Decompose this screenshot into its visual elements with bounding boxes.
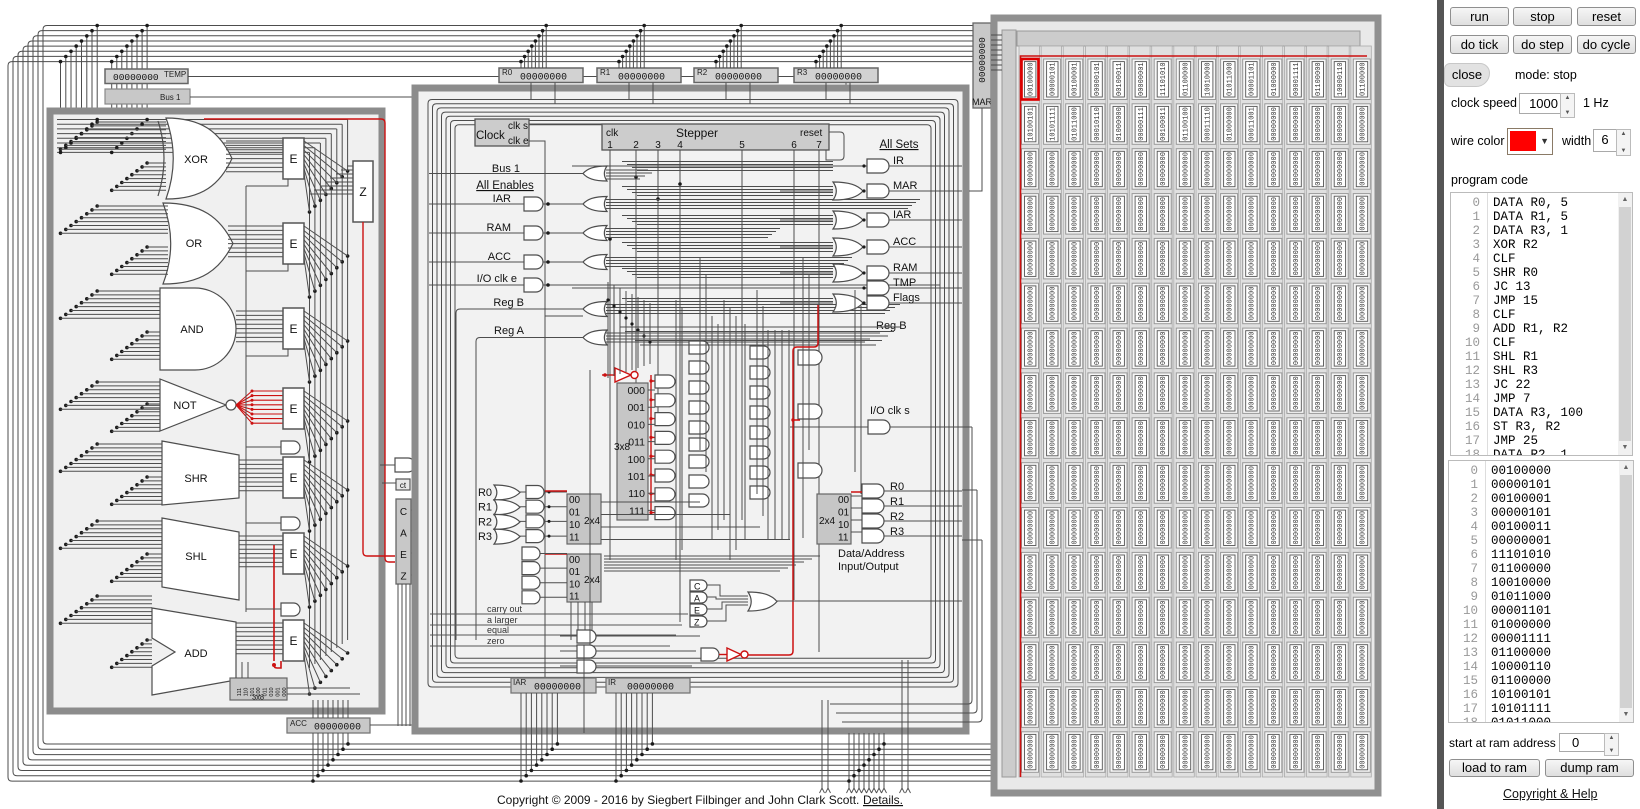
- svg-text:00000000: 00000000: [1293, 556, 1301, 590]
- svg-text:00000000: 00000000: [1337, 466, 1345, 500]
- svg-text:00000000: 00000000: [1182, 690, 1190, 724]
- svg-text:00000000: 00000000: [1249, 690, 1257, 724]
- svg-text:00100011: 00100011: [1160, 107, 1168, 141]
- svg-text:3x8: 3x8: [614, 442, 631, 453]
- svg-text:Stepper: Stepper: [676, 126, 718, 140]
- svg-text:00000000: 00000000: [1028, 152, 1036, 186]
- svg-text:00000000: 00000000: [1271, 242, 1279, 276]
- svg-text:00000000: 00000000: [1249, 421, 1257, 455]
- svg-text:6: 6: [791, 140, 797, 151]
- svg-text:00000000: 00000000: [1094, 287, 1102, 321]
- svg-text:01100100: 01100100: [1182, 107, 1190, 141]
- svg-text:7: 7: [816, 140, 822, 151]
- svg-text:00000000: 00000000: [1271, 421, 1279, 455]
- svg-text:00000000: 00000000: [1182, 601, 1190, 635]
- svg-text:00000000: 00000000: [1072, 601, 1080, 635]
- svg-text:00000000: 00000000: [1271, 735, 1279, 769]
- svg-text:00001101: 00001101: [1249, 62, 1257, 96]
- svg-text:01: 01: [838, 508, 850, 519]
- svg-text:00: 00: [569, 555, 581, 566]
- svg-text:Bus 1: Bus 1: [160, 93, 181, 102]
- svg-text:00000000: 00000000: [1050, 197, 1058, 231]
- svg-text:IAR: IAR: [893, 209, 911, 221]
- svg-text:00000000: 00000000: [1227, 242, 1235, 276]
- svg-text:00000000: 00000000: [1227, 466, 1235, 500]
- svg-text:00000000: 00000000: [1359, 242, 1367, 276]
- svg-text:00000000: 00000000: [1182, 421, 1190, 455]
- svg-text:00000000: 00000000: [1138, 690, 1146, 724]
- svg-text:00000000: 00000000: [1337, 287, 1345, 321]
- svg-text:01100000: 01100000: [1359, 62, 1367, 96]
- svg-text:00000000: 00000000: [1227, 376, 1235, 410]
- svg-text:101: 101: [627, 471, 645, 483]
- svg-text:00000000: 00000000: [1359, 601, 1367, 635]
- svg-text:00000000: 00000000: [1359, 466, 1367, 500]
- svg-text:00000000: 00000000: [1072, 511, 1080, 545]
- svg-text:00000000: 00000000: [1315, 376, 1323, 410]
- svg-text:00000000: 00000000: [1116, 556, 1124, 590]
- svg-text:00000000: 00000000: [1028, 242, 1036, 276]
- svg-text:00000000: 00000000: [1315, 511, 1323, 545]
- svg-text:R0: R0: [890, 481, 904, 493]
- svg-text:00000000: 00000000: [1249, 287, 1257, 321]
- svg-text:00000000: 00000000: [1205, 645, 1213, 679]
- svg-text:4: 4: [677, 140, 683, 151]
- svg-text:00000000: 00000000: [1182, 376, 1190, 410]
- svg-text:00000000: 00000000: [1160, 690, 1168, 724]
- svg-text:00000000: 00000000: [1116, 287, 1124, 321]
- svg-text:00000000: 00000000: [1050, 376, 1058, 410]
- svg-text:IAR: IAR: [513, 678, 527, 687]
- svg-text:10100101: 10100101: [1028, 107, 1036, 141]
- svg-text:00000000: 00000000: [1359, 376, 1367, 410]
- svg-text:00000000: 00000000: [1271, 466, 1279, 500]
- svg-text:E: E: [289, 471, 297, 485]
- svg-text:00000000: 00000000: [1315, 242, 1323, 276]
- svg-text:00000000: 00000000: [1293, 690, 1301, 724]
- svg-text:MAR: MAR: [893, 180, 918, 192]
- svg-text:A: A: [694, 594, 700, 604]
- svg-text:00000000: 00000000: [1182, 511, 1190, 545]
- svg-text:00: 00: [838, 495, 850, 506]
- svg-text:00000000: 00000000: [1028, 556, 1036, 590]
- svg-text:00000000: 00000000: [1094, 421, 1102, 455]
- svg-text:00000000: 00000000: [1359, 735, 1367, 769]
- svg-text:00000000: 00000000: [1116, 376, 1124, 410]
- svg-text:00000000: 00000000: [1094, 197, 1102, 231]
- svg-text:00000000: 00000000: [1050, 421, 1058, 455]
- svg-text:00000000: 00000000: [1315, 287, 1323, 321]
- svg-text:00000000: 00000000: [113, 72, 159, 83]
- svg-text:00000000: 00000000: [1293, 511, 1301, 545]
- svg-text:00010110: 00010110: [1094, 107, 1102, 141]
- svg-text:00000000: 00000000: [1271, 690, 1279, 724]
- svg-text:00000000: 00000000: [1138, 197, 1146, 231]
- svg-text:2x4: 2x4: [584, 575, 601, 586]
- svg-text:00000000: 00000000: [534, 682, 581, 693]
- svg-text:00000000: 00000000: [1050, 690, 1058, 724]
- svg-text:00000000: 00000000: [1138, 331, 1146, 365]
- svg-text:10: 10: [838, 520, 850, 531]
- svg-text:00000000: 00000000: [1359, 152, 1367, 186]
- svg-text:00000000: 00000000: [1028, 690, 1036, 724]
- svg-text:00000000: 00000000: [1271, 197, 1279, 231]
- svg-text:00000000: 00000000: [1072, 556, 1080, 590]
- svg-text:IR: IR: [893, 155, 904, 167]
- svg-text:Z: Z: [359, 185, 366, 199]
- svg-text:00000000: 00000000: [1050, 331, 1058, 365]
- svg-text:00000000: 00000000: [1249, 511, 1257, 545]
- svg-text:00000000: 00000000: [1249, 735, 1257, 769]
- svg-text:00000000: 00000000: [1160, 466, 1168, 500]
- svg-text:01011000: 01011000: [1227, 62, 1235, 96]
- svg-text:000: 000: [627, 385, 645, 397]
- svg-text:01000000: 01000000: [1116, 107, 1124, 141]
- svg-text:R2: R2: [697, 68, 708, 77]
- svg-text:00000000: 00000000: [1072, 376, 1080, 410]
- svg-text:00000000: 00000000: [1315, 152, 1323, 186]
- svg-text:00000000: 00000000: [1249, 331, 1257, 365]
- svg-text:00000000: 00000000: [1293, 601, 1301, 635]
- svg-text:00000000: 00000000: [1160, 197, 1168, 231]
- svg-text:00000000: 00000000: [1271, 645, 1279, 679]
- svg-text:carry out: carry out: [487, 604, 523, 614]
- svg-text:00000000: 00000000: [1359, 690, 1367, 724]
- svg-text:00000000: 00000000: [1227, 287, 1235, 321]
- svg-text:clk: clk: [606, 128, 619, 139]
- svg-text:00000000: 00000000: [1116, 152, 1124, 186]
- svg-text:00000000: 00000000: [1138, 645, 1146, 679]
- svg-text:00000000: 00000000: [1028, 735, 1036, 769]
- svg-text:ACC: ACC: [893, 236, 916, 248]
- svg-text:00000000: 00000000: [1249, 152, 1257, 186]
- svg-text:01000000: 01000000: [1271, 62, 1279, 96]
- svg-text:00000000: 00000000: [1205, 421, 1213, 455]
- svg-text:10000110: 10000110: [1337, 62, 1345, 96]
- svg-text:001: 001: [627, 402, 645, 414]
- svg-text:a larger: a larger: [487, 615, 518, 625]
- svg-text:RAM: RAM: [487, 222, 511, 234]
- svg-text:Copyright © 2009 - 2016 by Sie: Copyright © 2009 - 2016 by Siegbert Filb…: [497, 793, 859, 807]
- svg-text:equal: equal: [487, 625, 509, 635]
- svg-text:00000000: 00000000: [1116, 466, 1124, 500]
- svg-text:10: 10: [569, 520, 581, 531]
- svg-text:100: 100: [627, 454, 645, 466]
- svg-text:00: 00: [569, 495, 581, 506]
- svg-text:00000000: 00000000: [1116, 331, 1124, 365]
- svg-text:00000000: 00000000: [520, 72, 567, 83]
- svg-text:2x4: 2x4: [584, 516, 601, 527]
- svg-text:E: E: [400, 550, 407, 561]
- svg-text:R1: R1: [890, 496, 904, 508]
- svg-text:00000000: 00000000: [1227, 645, 1235, 679]
- svg-text:00000000: 00000000: [1160, 376, 1168, 410]
- svg-text:00000000: 00000000: [1138, 601, 1146, 635]
- svg-text:00000000: 00000000: [1293, 645, 1301, 679]
- svg-text:00000000: 00000000: [1227, 690, 1235, 724]
- svg-text:I/O clk e: I/O clk e: [477, 273, 517, 285]
- svg-text:00000101: 00000101: [1050, 62, 1058, 96]
- svg-text:SHR: SHR: [184, 473, 207, 485]
- svg-text:00000000: 00000000: [1337, 152, 1345, 186]
- svg-text:00000000: 00000000: [1094, 376, 1102, 410]
- svg-text:00000000: 00000000: [1315, 735, 1323, 769]
- svg-text:00000000: 00000000: [1094, 735, 1102, 769]
- svg-text:11101010: 11101010: [1160, 62, 1168, 96]
- svg-text:00000000: 00000000: [1359, 287, 1367, 321]
- svg-text:00000000: 00000000: [1138, 466, 1146, 500]
- svg-text:00000000: 00000000: [1138, 735, 1146, 769]
- svg-text:000: 000: [282, 687, 288, 696]
- svg-text:RAM: RAM: [893, 262, 917, 274]
- svg-text:00000000: 00000000: [1182, 152, 1190, 186]
- svg-text:00000000: 00000000: [1359, 421, 1367, 455]
- svg-text:00000000: 00000000: [1249, 197, 1257, 231]
- svg-text:Input/Output: Input/Output: [838, 561, 899, 573]
- svg-text:00100000: 00100000: [1028, 62, 1036, 96]
- svg-text:3x8: 3x8: [252, 693, 264, 702]
- svg-text:00000000: 00000000: [1094, 601, 1102, 635]
- svg-text:00000000: 00000000: [1072, 645, 1080, 679]
- svg-text:00000000: 00000000: [1205, 735, 1213, 769]
- svg-text:Reg B: Reg B: [876, 320, 907, 332]
- svg-text:00000000: 00000000: [1094, 556, 1102, 590]
- svg-text:00000000: 00000000: [1337, 376, 1345, 410]
- svg-text:00000000: 00000000: [1182, 331, 1190, 365]
- svg-text:00000000: 00000000: [1028, 421, 1036, 455]
- svg-text:00000000: 00000000: [1249, 242, 1257, 276]
- svg-text:110: 110: [243, 688, 249, 697]
- svg-text:00000000: 00000000: [1359, 645, 1367, 679]
- svg-text:00001111: 00001111: [1293, 62, 1301, 96]
- svg-text:00000000: 00000000: [1293, 107, 1301, 141]
- svg-text:00000000: 00000000: [1160, 242, 1168, 276]
- svg-text:00000000: 00000000: [1138, 376, 1146, 410]
- svg-text:00000000: 00000000: [1072, 421, 1080, 455]
- svg-text:R1: R1: [478, 502, 492, 514]
- svg-text:00000000: 00000000: [1160, 421, 1168, 455]
- svg-text:clk e: clk e: [508, 136, 529, 147]
- svg-text:All Sets: All Sets: [880, 139, 919, 151]
- svg-text:R2: R2: [890, 511, 904, 523]
- svg-text:00000000: 00000000: [1271, 556, 1279, 590]
- svg-text:00000000: 00000000: [1050, 152, 1058, 186]
- svg-text:01100000: 01100000: [1315, 62, 1323, 96]
- svg-text:00000000: 00000000: [1315, 421, 1323, 455]
- svg-text:TMP: TMP: [893, 277, 916, 289]
- svg-text:00000000: 00000000: [1249, 466, 1257, 500]
- svg-text:00000000: 00000000: [1227, 152, 1235, 186]
- svg-text:E: E: [289, 402, 297, 416]
- svg-text:00000000: 00000000: [1116, 197, 1124, 231]
- svg-text:IAR: IAR: [493, 193, 511, 205]
- svg-text:00000000: 00000000: [1227, 735, 1235, 769]
- svg-text:010: 010: [627, 419, 645, 431]
- svg-text:00000000: 00000000: [1205, 376, 1213, 410]
- svg-text:OR: OR: [186, 238, 203, 250]
- svg-text:R3: R3: [478, 531, 492, 543]
- svg-text:00000000: 00000000: [1271, 601, 1279, 635]
- svg-text:010: 010: [269, 687, 275, 696]
- svg-text:00000000: 00000000: [1050, 242, 1058, 276]
- svg-text:00000000: 00000000: [1072, 197, 1080, 231]
- svg-text:All Enables: All Enables: [476, 180, 534, 192]
- svg-text:00000000: 00000000: [1160, 556, 1168, 590]
- svg-text:00000000: 00000000: [1160, 601, 1168, 635]
- svg-text:00000000: 00000000: [1337, 645, 1345, 679]
- svg-text:11: 11: [569, 533, 580, 544]
- svg-text:00000000: 00000000: [1205, 197, 1213, 231]
- svg-text:00000000: 00000000: [1315, 197, 1323, 231]
- svg-text:00000000: 00000000: [1050, 511, 1058, 545]
- svg-text:00000000: 00000000: [1293, 287, 1301, 321]
- svg-text:00000000: 00000000: [1182, 197, 1190, 231]
- svg-text:00000000: 00000000: [1072, 152, 1080, 186]
- svg-text:00000000: 00000000: [1227, 601, 1235, 635]
- svg-text:00000000: 00000000: [815, 72, 862, 83]
- svg-text:10101111: 10101111: [1050, 107, 1058, 141]
- svg-text:00000000: 00000000: [1293, 331, 1301, 365]
- svg-text:00000000: 00000000: [1138, 287, 1146, 321]
- svg-text:ACC: ACC: [488, 251, 511, 263]
- svg-text:00000000: 00000000: [314, 722, 361, 733]
- svg-text:00000000: 00000000: [1359, 331, 1367, 365]
- svg-text:00000000: 00000000: [1205, 287, 1213, 321]
- svg-text:00000000: 00000000: [1205, 601, 1213, 635]
- svg-text:00000000: 00000000: [1050, 466, 1058, 500]
- svg-text:00000000: 00000000: [1205, 242, 1213, 276]
- svg-text:00000000: 00000000: [1028, 466, 1036, 500]
- svg-text:10010000: 10010000: [1205, 62, 1213, 96]
- svg-text:00000000: 00000000: [1337, 242, 1345, 276]
- svg-text:zero: zero: [487, 636, 505, 646]
- svg-text:00000000: 00000000: [618, 72, 665, 83]
- svg-text:10: 10: [569, 579, 581, 590]
- svg-text:001: 001: [275, 687, 281, 696]
- svg-text:2: 2: [633, 140, 639, 151]
- svg-text:00000000: 00000000: [1293, 197, 1301, 231]
- svg-text:00000000: 00000000: [1094, 242, 1102, 276]
- svg-text:00000000: 00000000: [1160, 735, 1168, 769]
- svg-text:00000000: 00000000: [1271, 331, 1279, 365]
- svg-text:00000000: 00000000: [1028, 287, 1036, 321]
- svg-text:00000000: 00000000: [1160, 511, 1168, 545]
- svg-text:00000000: 00000000: [1293, 421, 1301, 455]
- svg-text:00000111: 00000111: [1138, 107, 1146, 141]
- svg-text:00000000: 00000000: [1116, 601, 1124, 635]
- svg-text:00000000: 00000000: [1227, 331, 1235, 365]
- svg-text:00000001: 00000001: [1138, 62, 1146, 96]
- svg-text:00000000: 00000000: [1205, 331, 1213, 365]
- svg-text:AND: AND: [180, 324, 203, 336]
- svg-text:00000000: 00000000: [1337, 421, 1345, 455]
- svg-text:00000000: 00000000: [1227, 421, 1235, 455]
- svg-text:A: A: [400, 529, 407, 540]
- svg-text:00000000: 00000000: [1094, 645, 1102, 679]
- svg-text:00000000: 00000000: [1359, 197, 1367, 231]
- svg-text:I/O clk s: I/O clk s: [870, 405, 910, 417]
- svg-text:R0: R0: [478, 487, 492, 499]
- svg-text:01: 01: [569, 567, 581, 578]
- svg-text:E: E: [289, 322, 297, 336]
- svg-text:00000000: 00000000: [1116, 511, 1124, 545]
- svg-text:Reg B: Reg B: [493, 297, 524, 309]
- svg-text:00000000: 00000000: [1028, 376, 1036, 410]
- svg-text:00000000: 00000000: [1094, 466, 1102, 500]
- svg-text:00000000: 00000000: [1094, 511, 1102, 545]
- svg-text:MAR: MAR: [972, 97, 993, 107]
- svg-text:00000000: 00000000: [1293, 152, 1301, 186]
- svg-text:00000000: 00000000: [1359, 107, 1367, 141]
- svg-text:R3: R3: [797, 68, 808, 77]
- svg-text:00000000: 00000000: [1028, 645, 1036, 679]
- svg-text:00000000: 00000000: [1271, 376, 1279, 410]
- svg-text:011: 011: [628, 437, 645, 449]
- svg-text:00000000: 00000000: [1205, 556, 1213, 590]
- svg-text:00000000: 00000000: [1094, 690, 1102, 724]
- svg-text:Clock: Clock: [476, 130, 505, 142]
- svg-text:00000000: 00000000: [1293, 735, 1301, 769]
- svg-text:00000000: 00000000: [1072, 735, 1080, 769]
- svg-text:00000000: 00000000: [1227, 511, 1235, 545]
- svg-text:IR: IR: [608, 678, 616, 687]
- svg-text:00000000: 00000000: [1359, 511, 1367, 545]
- svg-text:00000000: 00000000: [1293, 376, 1301, 410]
- svg-text:00000000: 00000000: [715, 72, 762, 83]
- svg-text:reset: reset: [800, 128, 822, 139]
- svg-text:00000000: 00000000: [1116, 735, 1124, 769]
- svg-text:ct: ct: [400, 481, 407, 490]
- svg-text:00000000: 00000000: [1050, 601, 1058, 635]
- svg-text:00000000: 00000000: [1337, 556, 1345, 590]
- svg-text:3: 3: [655, 140, 661, 151]
- svg-text:00000000: 00000000: [1271, 107, 1279, 141]
- svg-text:110: 110: [628, 488, 645, 500]
- svg-text:00000000: 00000000: [1337, 511, 1345, 545]
- svg-text:00000000: 00000000: [1138, 152, 1146, 186]
- svg-text:00000000: 00000000: [1138, 242, 1146, 276]
- svg-text:00000000: 00000000: [1315, 690, 1323, 724]
- svg-text:00000000: 00000000: [1050, 556, 1058, 590]
- svg-text:00000000: 00000000: [1116, 242, 1124, 276]
- svg-text:00000000: 00000000: [1249, 645, 1257, 679]
- svg-text:00000000: 00000000: [1249, 601, 1257, 635]
- svg-text:00000000: 00000000: [1160, 287, 1168, 321]
- svg-text:00000000: 00000000: [1337, 690, 1345, 724]
- svg-text:00000000: 00000000: [1315, 331, 1323, 365]
- svg-text:11: 11: [838, 533, 849, 544]
- svg-text:00000000: 00000000: [1271, 152, 1279, 186]
- svg-text:00000000: 00000000: [1337, 197, 1345, 231]
- svg-text:00000000: 00000000: [1072, 690, 1080, 724]
- svg-text:00000000: 00000000: [1138, 421, 1146, 455]
- svg-text:00000000: 00000000: [1094, 152, 1102, 186]
- svg-text:2x4: 2x4: [819, 516, 836, 527]
- svg-text:E: E: [694, 606, 700, 616]
- svg-text:111: 111: [237, 688, 243, 696]
- svg-text:00000000: 00000000: [1050, 645, 1058, 679]
- svg-text:00000000: 00000000: [1227, 197, 1235, 231]
- svg-text:00000000: 00000000: [1138, 556, 1146, 590]
- svg-text:00000000: 00000000: [977, 37, 988, 83]
- svg-text:Z: Z: [400, 572, 406, 583]
- svg-text:00000000: 00000000: [1337, 601, 1345, 635]
- svg-text:R0: R0: [502, 68, 513, 77]
- svg-text:R2: R2: [478, 516, 492, 528]
- svg-text:00000000: 00000000: [1072, 287, 1080, 321]
- svg-text:ACC: ACC: [290, 719, 307, 728]
- svg-text:00011001: 00011001: [1249, 107, 1257, 141]
